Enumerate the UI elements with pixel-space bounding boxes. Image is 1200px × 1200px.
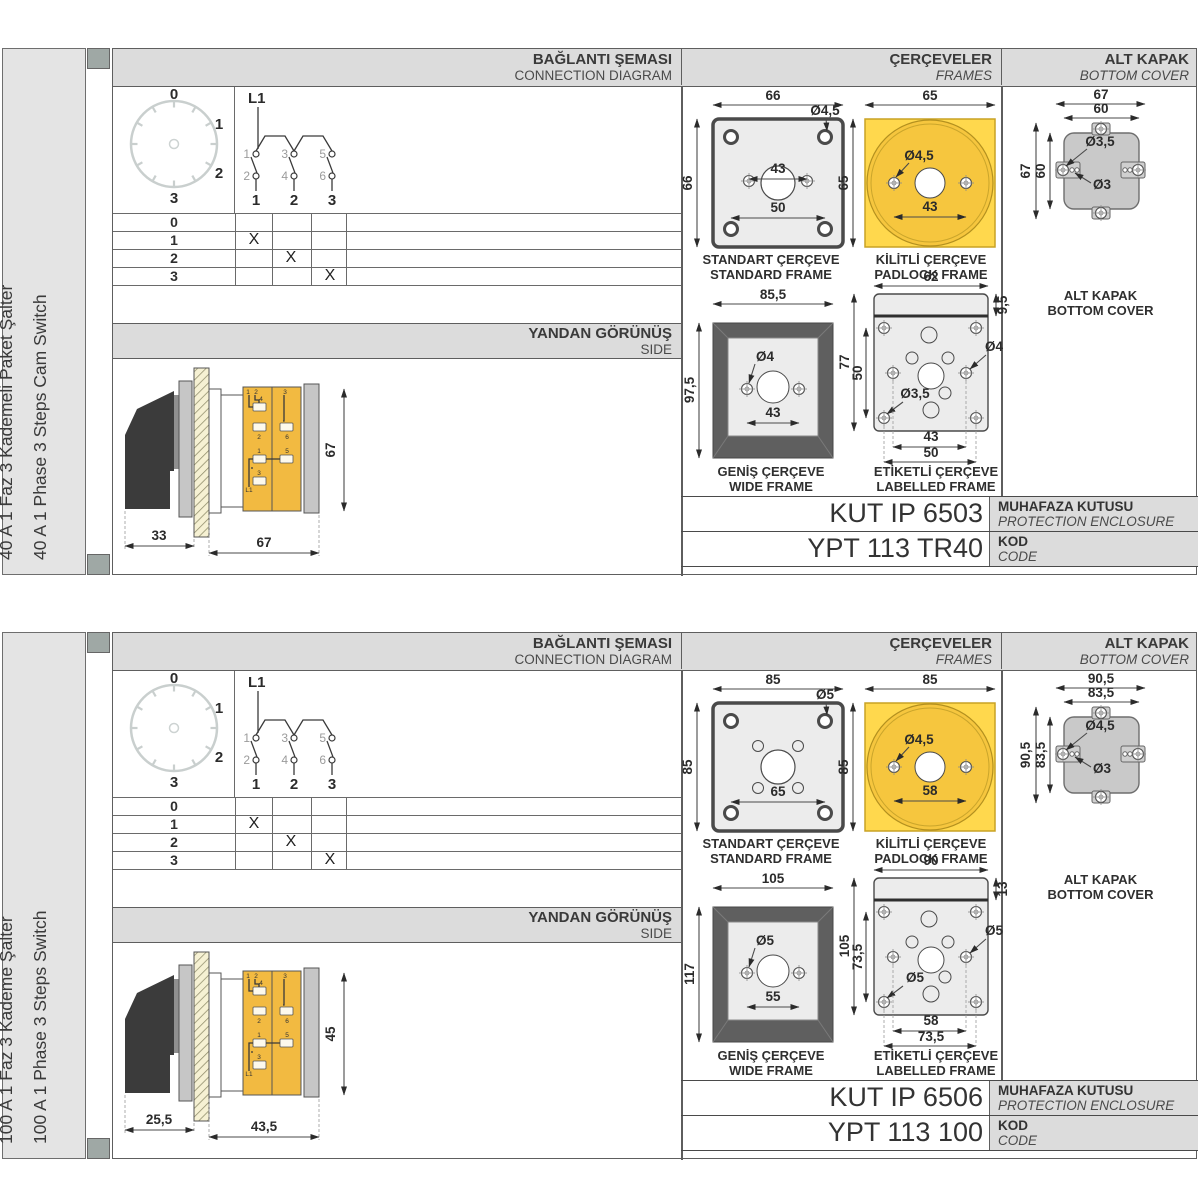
header-connection-diagram-en: CONNECTION DIAGRAM bbox=[514, 652, 672, 667]
contact-6: 6 bbox=[319, 753, 326, 767]
bottom-cover-title-tr: ALT KAPAK bbox=[1003, 873, 1198, 888]
hole-dia-left: Ø3,5 bbox=[900, 386, 930, 401]
dim-frame-width: 85 bbox=[765, 672, 781, 687]
output-3: 3 bbox=[328, 776, 336, 793]
dial-position-3: 3 bbox=[170, 190, 178, 207]
svg-text:6: 6 bbox=[285, 1018, 289, 1025]
labelled-frame-caption: ETİKETLİ ÇERÇEVE LABELLED FRAME bbox=[851, 1049, 1021, 1078]
hole-dia-label: Ø4 bbox=[756, 349, 775, 364]
table-row-label-0: 0 bbox=[113, 797, 235, 815]
svg-text:4: 4 bbox=[259, 980, 263, 987]
svg-text:1: 1 bbox=[257, 448, 261, 455]
dial-position-2: 2 bbox=[215, 749, 223, 766]
dim-frame-width: 65 bbox=[922, 88, 938, 103]
dim-cover-width-inner: 83,5 bbox=[1088, 685, 1115, 700]
product-code-value: YPT 113 100 bbox=[681, 1115, 989, 1150]
hole-dia-label: Ø5 bbox=[816, 687, 835, 702]
spine-marker-top bbox=[87, 632, 110, 653]
svg-text:1: 1 bbox=[246, 389, 250, 396]
side-view-header: YANDAN GÖRÜNÜŞ SIDE bbox=[113, 323, 681, 359]
dim-frame-height: 85 bbox=[680, 759, 695, 775]
dim-outer: 50 bbox=[923, 445, 938, 460]
standard-frame-title-tr: STANDART ÇERÇEVE bbox=[691, 253, 851, 268]
switch-dial-drawing: 0 1 2 3 bbox=[113, 87, 234, 213]
table-row-label-0: 0 bbox=[113, 213, 235, 231]
contact-mark-2: X bbox=[272, 249, 310, 267]
header-frames-tr: ÇERÇEVELER bbox=[889, 51, 992, 68]
dim-cover-height-inner: 83,5 bbox=[1033, 741, 1048, 768]
product-code-label: KOD CODE bbox=[989, 1116, 1198, 1150]
spine-marker-top bbox=[87, 48, 110, 69]
dim-side-height: 45 bbox=[323, 1026, 338, 1042]
column-header-bar: BAĞLANTI ŞEMASI CONNECTION DIAGRAM ÇERÇE… bbox=[113, 633, 1196, 671]
dim-outer: 73,5 bbox=[918, 1029, 945, 1044]
hole-dia-small: Ø3 bbox=[1093, 177, 1112, 192]
svg-text:3: 3 bbox=[283, 389, 287, 396]
enclosure-label-en: PROTECTION ENCLOSURE bbox=[998, 1098, 1198, 1113]
labelled-frame-title-tr: ETİKETLİ ÇERÇEVE bbox=[851, 465, 1021, 480]
svg-text:2: 2 bbox=[257, 1018, 261, 1025]
output-1: 1 bbox=[252, 776, 260, 793]
svg-text:5: 5 bbox=[285, 448, 289, 455]
labelled-frame-drawing: 62 9,5 77 50 Ø4 Ø3,5 43 50 bbox=[839, 271, 1011, 467]
side-view-header: YANDAN GÖRÜNÜŞ SIDE bbox=[113, 907, 681, 943]
dim-frame-height: 66 bbox=[680, 175, 695, 191]
labelled-frame-title-en: LABELLED FRAME bbox=[851, 1064, 1021, 1079]
dim-frame-bottom: 65 bbox=[770, 784, 786, 799]
dim-inner-height: 73,5 bbox=[850, 943, 865, 970]
labelled-frame-drawing: 90 13 105 73,5 Ø5 Ø5 58 73,5 bbox=[839, 855, 1011, 1051]
standard-frame-title-tr: STANDART ÇERÇEVE bbox=[691, 837, 851, 852]
header-connection-diagram-tr: BAĞLANTI ŞEMASI bbox=[533, 635, 672, 652]
bottom-cover-title-en: BOTTOM COVER bbox=[1003, 304, 1198, 319]
column-header-bar: BAĞLANTI ŞEMASI CONNECTION DIAGRAM ÇERÇE… bbox=[113, 49, 1196, 87]
code-label-en: CODE bbox=[998, 1133, 1198, 1148]
table-row-label-1: 1 bbox=[113, 815, 235, 833]
header-connection-diagram: BAĞLANTI ŞEMASI CONNECTION DIAGRAM bbox=[113, 49, 681, 85]
labelled-frame-title-tr: ETİKETLİ ÇERÇEVE bbox=[851, 1049, 1021, 1064]
dim-frame-mid: 43 bbox=[770, 161, 786, 176]
svg-text:3: 3 bbox=[257, 1054, 261, 1061]
enclosure-label-tr: MUHAFAZA KUTUSU bbox=[998, 1083, 1198, 1098]
dim-inner: 58 bbox=[923, 1013, 939, 1028]
dim-frame-height: 117 bbox=[682, 963, 697, 985]
standard-frame-title-en: STANDARD FRAME bbox=[691, 852, 851, 867]
wide-frame-title-tr: GENİŞ ÇERÇEVE bbox=[691, 465, 851, 480]
product-title-en: 100 A 1 Phase 3 Steps Switch bbox=[30, 911, 51, 1145]
output-2: 2 bbox=[290, 192, 298, 209]
contact-mark-3: X bbox=[311, 267, 349, 285]
dial-position-1: 1 bbox=[215, 116, 223, 133]
svg-text:1: 1 bbox=[246, 973, 250, 980]
table-row-label-1: 1 bbox=[113, 231, 235, 249]
switch-dial-drawing: 0 1 2 3 bbox=[113, 671, 234, 797]
dim-knob-depth: 25,5 bbox=[146, 1112, 173, 1127]
side-view-header-tr: YANDAN GÖRÜNÜŞ bbox=[528, 325, 672, 342]
standard-frame-caption: STANDART ÇERÇEVE STANDARD FRAME bbox=[691, 837, 851, 866]
side-view-drawing: 124236153L1 45 25,5 43,5 bbox=[113, 943, 681, 1160]
svg-text:4: 4 bbox=[259, 396, 263, 403]
svg-text:1: 1 bbox=[257, 1032, 261, 1039]
side-view-header-tr: YANDAN GÖRÜNÜŞ bbox=[528, 909, 672, 926]
header-connection-diagram-tr: BAĞLANTI ŞEMASI bbox=[533, 51, 672, 68]
dim-frame-width: 85,5 bbox=[760, 287, 787, 302]
dim-body-depth: 67 bbox=[256, 535, 271, 550]
padlock-frame-title-tr: KİLİTLİ ÇERÇEVE bbox=[851, 837, 1011, 852]
side-view-header-en: SIDE bbox=[640, 926, 672, 941]
product-title-column: 100 A 1 Faz 3 Kademe Şalter 100 A 1 Phas… bbox=[2, 632, 86, 1159]
mounting-panel bbox=[194, 368, 209, 537]
side-view-header-en: SIDE bbox=[640, 342, 672, 357]
phase-label: L1 bbox=[248, 90, 266, 107]
header-bottom-cover-en: BOTTOM COVER bbox=[1080, 68, 1189, 83]
header-bottom-cover: ALT KAPAK BOTTOM COVER bbox=[1001, 633, 1198, 669]
dial-position-2: 2 bbox=[215, 165, 223, 182]
product-title-en: 40 A 1 Phase 3 Steps Cam Switch bbox=[30, 294, 51, 560]
dim-frame-mid: 43 bbox=[765, 405, 781, 420]
output-2: 2 bbox=[290, 776, 298, 793]
switch-knob bbox=[125, 975, 174, 1093]
product-title-column: 40 A 1 Faz 3 Kademeli Paket Şalter 40 A … bbox=[2, 48, 86, 575]
wide-frame-title-tr: GENİŞ ÇERÇEVE bbox=[691, 1049, 851, 1064]
padlock-frame-drawing: 65 65 Ø4,5 43 bbox=[839, 89, 1011, 254]
header-frames-en: FRAMES bbox=[936, 68, 992, 83]
enclosure-code-value: KUT IP 6506 bbox=[681, 1080, 989, 1115]
dim-cover-height-outer: 90,5 bbox=[1018, 741, 1033, 768]
product-code-value: YPT 113 TR40 bbox=[681, 531, 989, 566]
header-bottom-cover: ALT KAPAK BOTTOM COVER bbox=[1001, 49, 1198, 85]
rear-plate bbox=[304, 384, 319, 513]
contact-6: 6 bbox=[319, 169, 326, 183]
dim-frame-width: 62 bbox=[923, 269, 938, 284]
contact-mark-2: X bbox=[272, 833, 310, 851]
header-frames-en: FRAMES bbox=[936, 652, 992, 667]
product-title-tr: 100 A 1 Faz 3 Kademe Şalter bbox=[0, 916, 17, 1144]
dim-cover-width-outer: 90,5 bbox=[1088, 671, 1115, 686]
padlock-frame-title-tr: KİLİTLİ ÇERÇEVE bbox=[851, 253, 1011, 268]
hole-dia-small: Ø3 bbox=[1093, 761, 1112, 776]
standard-frame-caption: STANDART ÇERÇEVE STANDARD FRAME bbox=[691, 253, 851, 282]
svg-text:3: 3 bbox=[257, 470, 261, 477]
dim-cover-width-inner: 60 bbox=[1093, 101, 1108, 116]
dim-knob-depth: 33 bbox=[151, 528, 167, 543]
catalog-page: { "colors": { "header_bg": "#dcdcdc", "l… bbox=[0, 0, 1200, 1200]
side-view-drawing: 124236153L1 67 33 67 bbox=[113, 359, 681, 576]
dim-frame-bottom: 50 bbox=[770, 200, 785, 215]
contact-5: 5 bbox=[319, 147, 326, 161]
dim-frame-mid: 55 bbox=[765, 989, 781, 1004]
output-3: 3 bbox=[328, 192, 336, 209]
product-title-tr: 40 A 1 Faz 3 Kademeli Paket Şalter bbox=[0, 285, 17, 560]
svg-text:2: 2 bbox=[257, 434, 261, 441]
switch-knob bbox=[125, 391, 174, 509]
dim-frame-width: 105 bbox=[762, 871, 785, 886]
contact-5: 5 bbox=[319, 731, 326, 745]
padlock-frame-drawing: 85 85 Ø4,5 58 bbox=[839, 673, 1011, 838]
contact-mark-1: X bbox=[235, 231, 273, 249]
header-bottom-cover-en: BOTTOM COVER bbox=[1080, 652, 1189, 667]
dim-frame-height: 97,5 bbox=[682, 376, 697, 403]
connection-circuit-drawing: L1 1 3 5 2 4 6 1 2 3 bbox=[234, 671, 681, 797]
contact-3: 3 bbox=[281, 731, 288, 745]
enclosure-label-tr: MUHAFAZA KUTUSU bbox=[998, 499, 1198, 514]
enclosure-label-en: PROTECTION ENCLOSURE bbox=[998, 514, 1198, 529]
contact-2: 2 bbox=[243, 753, 250, 767]
svg-text:3: 3 bbox=[283, 973, 287, 980]
spine-marker-bottom bbox=[87, 1138, 110, 1159]
spine-marker-bottom bbox=[87, 554, 110, 575]
wide-frame-title-en: WIDE FRAME bbox=[691, 480, 851, 495]
code-label-tr: KOD bbox=[998, 1118, 1198, 1133]
code-label-tr: KOD bbox=[998, 534, 1198, 549]
dial-position-1: 1 bbox=[215, 700, 223, 717]
rear-plate bbox=[304, 968, 319, 1097]
bottom-cover-drawing: 90,5 83,5 90,5 83,5 Ø4,5 Ø3 bbox=[1003, 673, 1198, 873]
dim-cover-height-outer: 67 bbox=[1018, 163, 1033, 178]
bottom-cover-drawing: 67 60 67 60 Ø3,5 Ø3 bbox=[1003, 89, 1198, 289]
contact-4: 4 bbox=[281, 753, 288, 767]
contact-mark-3: X bbox=[311, 851, 349, 869]
mounting-panel bbox=[194, 952, 209, 1121]
dim-frame-width: 90 bbox=[923, 853, 938, 868]
product-section-100a: 100 A 1 Faz 3 Kademe Şalter 100 A 1 Phas… bbox=[0, 632, 1200, 1159]
contact-1: 1 bbox=[243, 147, 250, 161]
datasheet-panel: BAĞLANTI ŞEMASI CONNECTION DIAGRAM ÇERÇE… bbox=[112, 48, 1197, 575]
enclosure-code-label: MUHAFAZA KUTUSU PROTECTION ENCLOSURE bbox=[989, 1081, 1198, 1115]
standard-frame-title-en: STANDARD FRAME bbox=[691, 268, 851, 283]
dim-frame-mid: 58 bbox=[922, 783, 938, 798]
hole-dia-label: Ø4,5 bbox=[904, 148, 934, 163]
wide-frame-caption: GENİŞ ÇERÇEVE WIDE FRAME bbox=[691, 1049, 851, 1078]
dim-side-height: 67 bbox=[323, 442, 338, 457]
dim-frame-width: 85 bbox=[922, 672, 938, 687]
svg-text:5: 5 bbox=[285, 1032, 289, 1039]
product-code-label: KOD CODE bbox=[989, 532, 1198, 566]
hole-dia-label: Ø4,5 bbox=[904, 732, 934, 747]
labelled-frame-caption: ETİKETLİ ÇERÇEVE LABELLED FRAME bbox=[851, 465, 1021, 494]
bottom-cover-caption: ALT KAPAK BOTTOM COVER bbox=[1003, 873, 1198, 902]
header-frames-tr: ÇERÇEVELER bbox=[889, 635, 992, 652]
dim-inner-height: 50 bbox=[850, 365, 865, 380]
contact-2: 2 bbox=[243, 169, 250, 183]
output-1: 1 bbox=[252, 192, 260, 209]
dim-frame-height: 65 bbox=[836, 175, 851, 191]
bottom-cover-title-en: BOTTOM COVER bbox=[1003, 888, 1198, 903]
dim-inner: 43 bbox=[923, 429, 939, 444]
dim-cover-height-inner: 60 bbox=[1033, 163, 1048, 178]
hole-dia-tab: Ø3,5 bbox=[1085, 134, 1115, 149]
table-row-label-2: 2 bbox=[113, 833, 235, 851]
dim-frame-width: 66 bbox=[765, 88, 781, 103]
table-row-label-2: 2 bbox=[113, 249, 235, 267]
svg-text:L1: L1 bbox=[245, 487, 253, 494]
bottom-cover-title-tr: ALT KAPAK bbox=[1003, 289, 1198, 304]
dim-frame-mid: 43 bbox=[922, 199, 938, 214]
header-frames: ÇERÇEVELER FRAMES bbox=[681, 49, 1001, 85]
header-connection-diagram-en: CONNECTION DIAGRAM bbox=[514, 68, 672, 83]
dial-position-0: 0 bbox=[170, 86, 178, 103]
enclosure-code-value: KUT IP 6503 bbox=[681, 496, 989, 531]
dial-position-3: 3 bbox=[170, 774, 178, 791]
wide-frame-title-en: WIDE FRAME bbox=[691, 1064, 851, 1079]
contact-mark-1: X bbox=[235, 815, 273, 833]
labelled-frame-title-en: LABELLED FRAME bbox=[851, 480, 1021, 495]
hole-dia-label: Ø4,5 bbox=[810, 103, 840, 118]
hole-dia-right: Ø5 bbox=[985, 923, 1004, 938]
header-bottom-cover-tr: ALT KAPAK bbox=[1105, 51, 1189, 68]
svg-text:L1: L1 bbox=[245, 1071, 253, 1078]
product-section-40a: 40 A 1 Faz 3 Kademeli Paket Şalter 40 A … bbox=[0, 48, 1200, 575]
hole-dia-label: Ø5 bbox=[756, 933, 775, 948]
header-bottom-cover-tr: ALT KAPAK bbox=[1105, 635, 1189, 652]
table-row-label-3: 3 bbox=[113, 851, 235, 869]
bottom-cover-caption: ALT KAPAK BOTTOM COVER bbox=[1003, 289, 1198, 318]
svg-text:2: 2 bbox=[254, 973, 258, 980]
header-connection-diagram: BAĞLANTI ŞEMASI CONNECTION DIAGRAM bbox=[113, 633, 681, 669]
header-frames: ÇERÇEVELER FRAMES bbox=[681, 633, 1001, 669]
datasheet-panel: BAĞLANTI ŞEMASI CONNECTION DIAGRAM ÇERÇE… bbox=[112, 632, 1197, 1159]
contact-1: 1 bbox=[243, 731, 250, 745]
connection-circuit-drawing: L1 1 3 5 2 4 6 1 2 3 bbox=[234, 87, 681, 213]
svg-text:2: 2 bbox=[254, 389, 258, 396]
svg-text:6: 6 bbox=[285, 434, 289, 441]
hole-dia-left: Ø5 bbox=[906, 970, 925, 985]
contact-3: 3 bbox=[281, 147, 288, 161]
hole-dia-right: Ø4 bbox=[985, 339, 1004, 354]
dim-frame-height: 85 bbox=[836, 759, 851, 775]
dim-body-depth: 43,5 bbox=[251, 1119, 278, 1134]
phase-label: L1 bbox=[248, 674, 266, 691]
contact-4: 4 bbox=[281, 169, 288, 183]
enclosure-code-label: MUHAFAZA KUTUSU PROTECTION ENCLOSURE bbox=[989, 497, 1198, 531]
wide-frame-caption: GENİŞ ÇERÇEVE WIDE FRAME bbox=[691, 465, 851, 494]
table-row-label-3: 3 bbox=[113, 267, 235, 285]
dim-cover-width-outer: 67 bbox=[1093, 87, 1108, 102]
dial-position-0: 0 bbox=[170, 670, 178, 687]
code-label-en: CODE bbox=[998, 549, 1198, 564]
hole-dia-tab: Ø4,5 bbox=[1085, 718, 1115, 733]
